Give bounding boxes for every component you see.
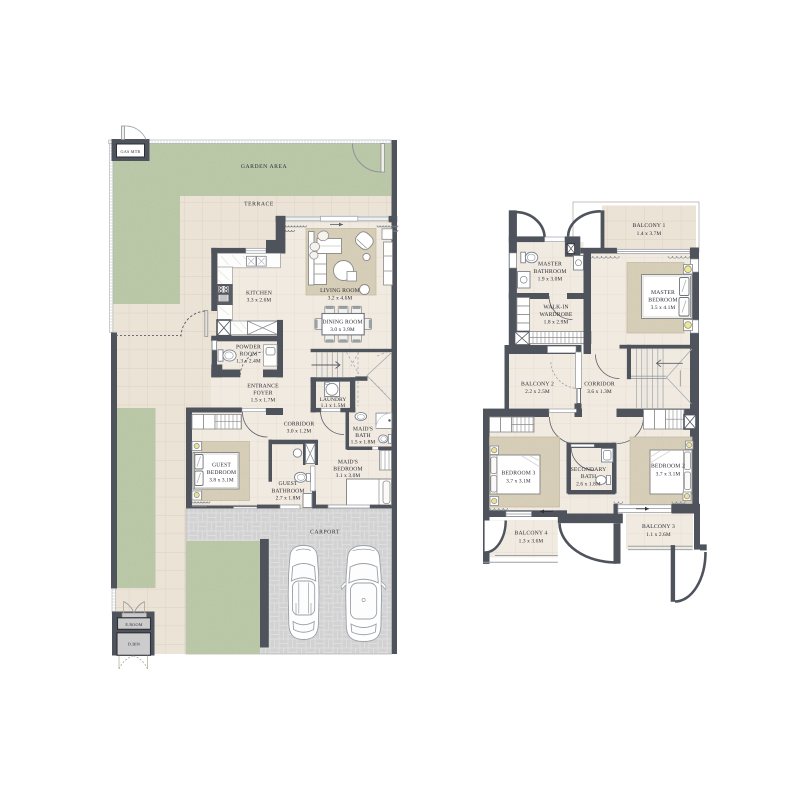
svg-text:3.5 x 4.1M: 3.5 x 4.1M [651, 305, 676, 311]
svg-text:WARDROBE: WARDROBE [539, 312, 572, 318]
svg-text:1.4 x 3.7M: 1.4 x 3.7M [637, 231, 662, 237]
svg-text:BATHROOM: BATHROOM [533, 269, 566, 275]
svg-text:GARDEN AREA: GARDEN AREA [241, 164, 288, 170]
svg-text:BALCONY 2: BALCONY 2 [521, 382, 554, 388]
svg-text:3.8 x 3.1M: 3.8 x 3.1M [209, 478, 234, 484]
svg-text:3.3 x 2.6M: 3.3 x 2.6M [247, 298, 272, 304]
svg-text:ENTRANCE: ENTRANCE [247, 384, 279, 390]
svg-text:CORRIDOR: CORRIDOR [584, 382, 615, 388]
svg-text:BALCONY 1: BALCONY 1 [633, 223, 666, 229]
svg-text:3.1 x 3.0M: 3.1 x 3.0M [336, 473, 361, 479]
svg-text:GUEST: GUEST [212, 463, 231, 469]
svg-text:1.5 x 1.8M: 1.5 x 1.8M [351, 440, 376, 446]
svg-text:2.7 x 1.8M: 2.7 x 1.8M [276, 496, 301, 502]
svg-text:DINING ROOM: DINING ROOM [322, 320, 362, 326]
svg-text:ROOM: ROOM [240, 352, 258, 358]
svg-text:1.3 x 3.6M: 1.3 x 3.6M [519, 538, 544, 544]
svg-text:CARPORT: CARPORT [310, 530, 340, 536]
svg-text:SECONDARY: SECONDARY [571, 467, 607, 473]
svg-text:1.1 x 2.6M: 1.1 x 2.6M [646, 532, 671, 538]
svg-text:D.BIN: D.BIN [128, 642, 140, 647]
svg-text:POWDER: POWDER [236, 345, 261, 351]
svg-text:MASTER: MASTER [538, 262, 562, 268]
svg-text:BATH: BATH [355, 433, 370, 439]
svg-text:BEDROOM: BEDROOM [207, 470, 237, 476]
svg-text:MAID'S: MAID'S [338, 460, 358, 466]
svg-text:3.7 x 3.1M: 3.7 x 3.1M [506, 478, 531, 484]
svg-text:1.9 x 3.0M: 1.9 x 3.0M [538, 277, 563, 283]
svg-text:MASTER: MASTER [651, 290, 675, 296]
svg-text:BATH: BATH [581, 474, 596, 480]
svg-text:BEDROOM 3: BEDROOM 3 [501, 471, 535, 477]
svg-text:TERRACE: TERRACE [244, 202, 274, 208]
svg-text:GUEST: GUEST [278, 481, 297, 487]
svg-text:2.6 x 1.8M: 2.6 x 1.8M [576, 481, 601, 487]
svg-text:MAID'S: MAID'S [353, 427, 373, 433]
svg-text:WALK-IN: WALK-IN [543, 305, 568, 311]
svg-text:BEDROOM 2: BEDROOM 2 [651, 464, 685, 470]
svg-text:3.0 x 1.2M: 3.0 x 1.2M [287, 429, 312, 435]
svg-text:E.ROOM: E.ROOM [125, 622, 142, 627]
svg-text:BEDROOM: BEDROOM [648, 298, 678, 304]
svg-text:1.1 x 1.5M: 1.1 x 1.5M [321, 403, 346, 409]
svg-text:GAS MTR: GAS MTR [121, 149, 141, 154]
svg-text:3.2 x 4.6M: 3.2 x 4.6M [328, 296, 353, 302]
svg-text:2.2 x 2.5M: 2.2 x 2.5M [525, 389, 550, 395]
svg-text:3.0 x 3.9M: 3.0 x 3.9M [330, 327, 355, 333]
svg-text:FOYER: FOYER [253, 391, 272, 397]
svg-text:BALCONY 3: BALCONY 3 [642, 524, 675, 530]
svg-text:CORRIDOR: CORRIDOR [284, 422, 315, 428]
svg-text:LIVING ROOM: LIVING ROOM [320, 288, 360, 294]
svg-text:1.5 x 1.7M: 1.5 x 1.7M [251, 398, 276, 404]
svg-text:KITCHEN: KITCHEN [246, 291, 272, 297]
svg-text:BALCONY 4: BALCONY 4 [515, 531, 548, 537]
svg-text:3.6 x 1.3M: 3.6 x 1.3M [587, 389, 612, 395]
svg-text:BEDROOM: BEDROOM [333, 466, 363, 472]
svg-text:BATHROOM: BATHROOM [271, 488, 304, 494]
svg-text:1.3 x 2.4M: 1.3 x 2.4M [236, 359, 261, 365]
svg-text:3.7 x 3.1M: 3.7 x 3.1M [656, 471, 681, 477]
svg-text:1.8 x 2.9M: 1.8 x 2.9M [544, 320, 569, 326]
